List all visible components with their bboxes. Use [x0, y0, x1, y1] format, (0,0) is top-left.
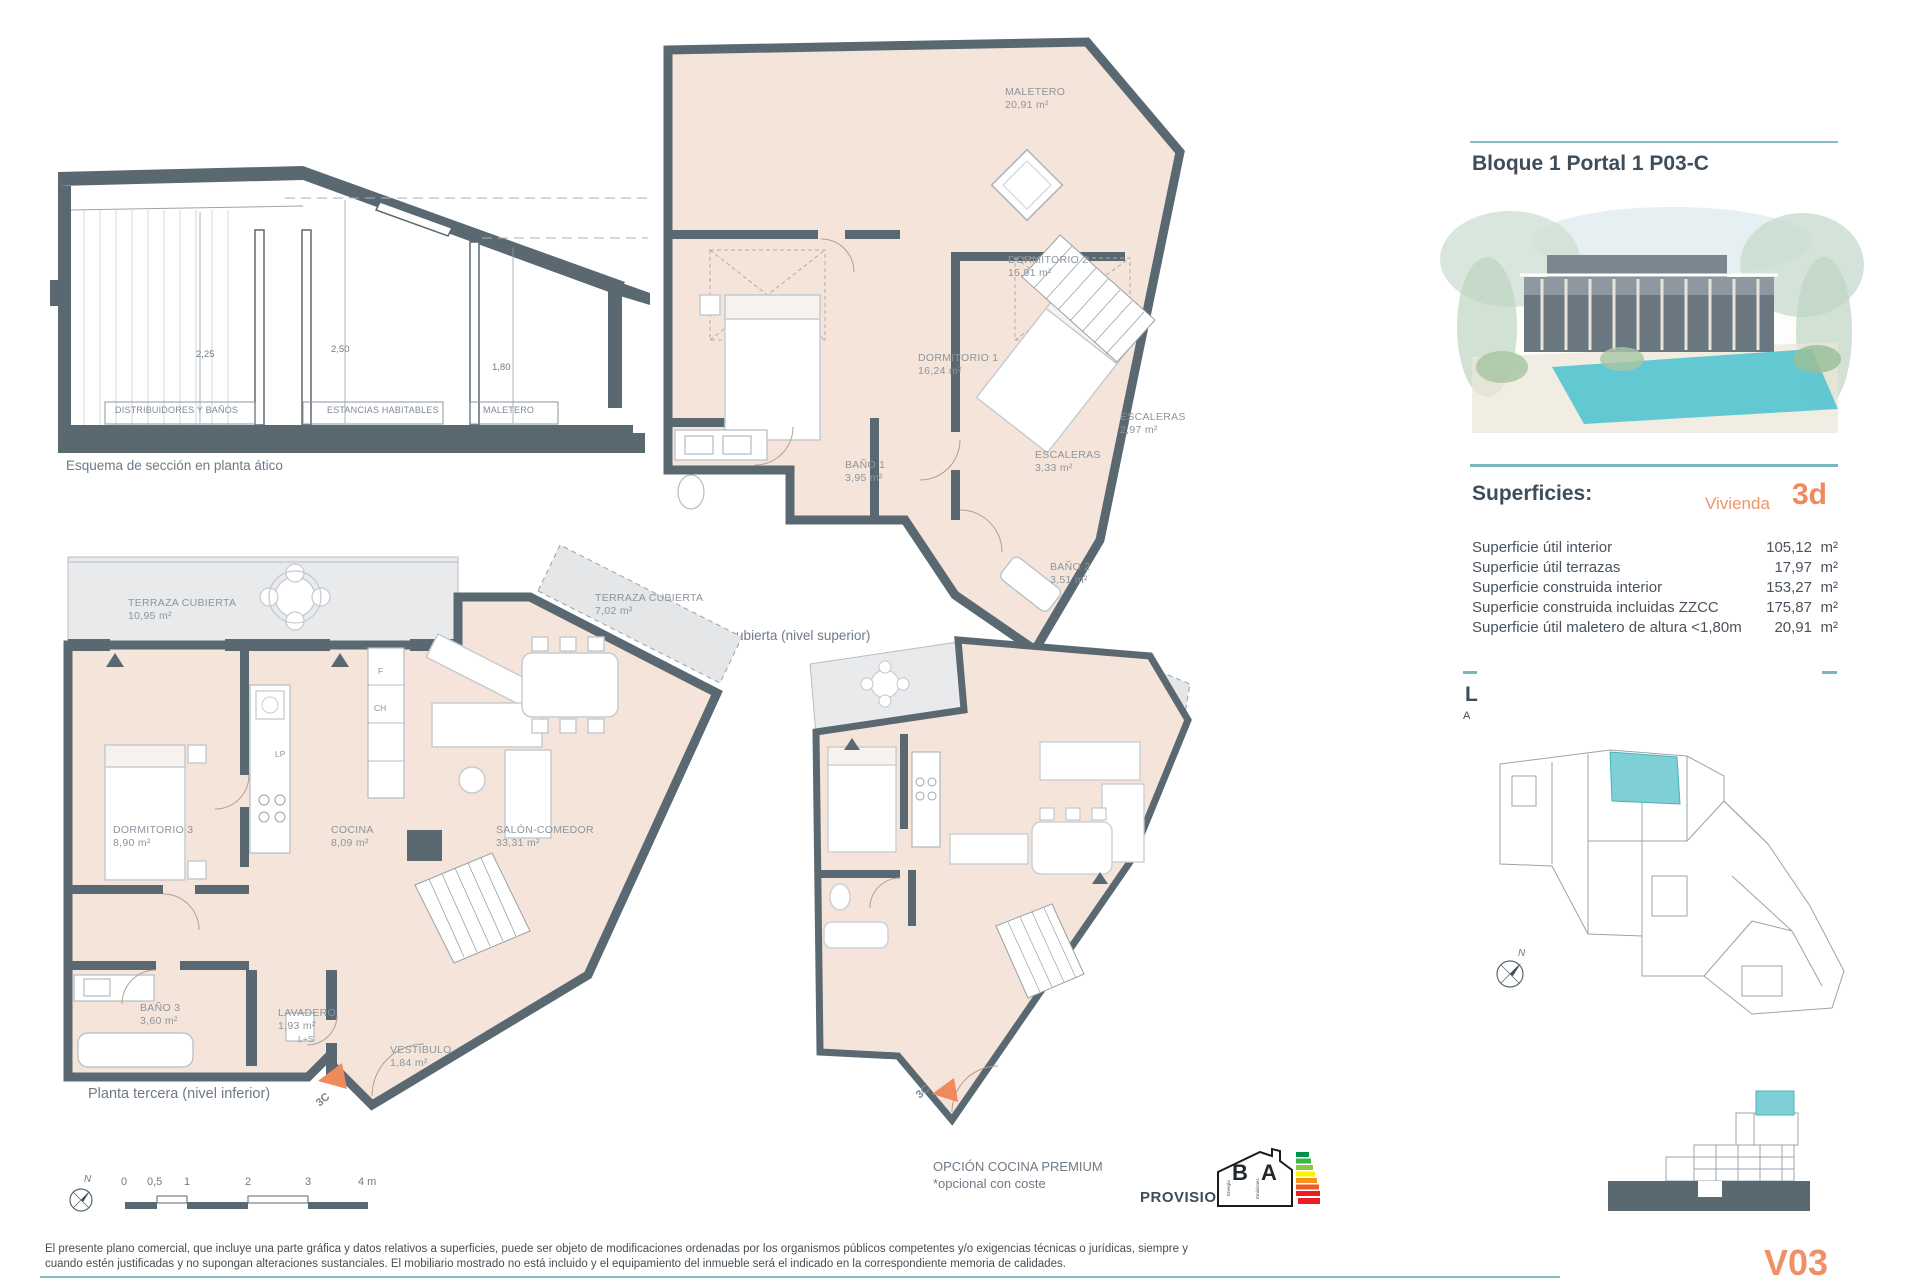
- room-label-escaleras2: ESCALERAS2,97 m²: [1120, 411, 1186, 437]
- lower-plan-caption: Planta tercera (nivel inferior): [88, 1086, 270, 1102]
- superficies-heading: Superficies:: [1472, 482, 1592, 506]
- partial-divider-left: [1463, 671, 1477, 674]
- section-zone-mid: ESTANCIAS HABITABLES: [327, 405, 439, 415]
- cropped-subheading-letter: A: [1463, 710, 1470, 722]
- room-label-vestibulo: VESTÍBULO1,84 m²: [390, 1044, 452, 1070]
- scale-tick-3: 3: [305, 1176, 311, 1188]
- scale-tick-05: 0,5: [147, 1176, 162, 1188]
- room-label-terraza2: TERRAZA CUBIERTA7,02 m²: [595, 592, 703, 618]
- site-key-plan: [1492, 746, 1870, 1024]
- scalebar-north-label: N: [84, 1174, 91, 1185]
- room-label-dorm3: DORMITORIO 38,90 m²: [113, 824, 193, 850]
- section-height-right: 1,80: [492, 362, 511, 373]
- superficies-row: Superficie útil terrazas17,97m²: [1472, 558, 1838, 578]
- project-rendering-illustration: [1472, 217, 1838, 433]
- scale-tick-1: 1: [184, 1176, 190, 1188]
- energy-letter-a: A: [1261, 1160, 1277, 1186]
- scalebar: [58, 1148, 378, 1218]
- superficies-divider: [1470, 464, 1838, 467]
- keyplan-north-label: N: [1518, 948, 1525, 959]
- label-ch: CH: [374, 703, 386, 713]
- room-label-dorm1: DORMITORIO 116,24 m²: [918, 352, 998, 378]
- header-divider: [1470, 141, 1838, 143]
- disclaimer-line2: cuando estén justificadas y no supongan …: [45, 1258, 1066, 1270]
- energy-arrows: [1296, 1152, 1320, 1204]
- label-lp: LP: [275, 749, 285, 759]
- version-label: V03: [1764, 1242, 1828, 1284]
- premium-kitchen-island: [950, 834, 1028, 864]
- building-elevation-schematic: [1606, 1083, 1816, 1215]
- superficies-row: Superficie construida interior153,27m²: [1472, 578, 1838, 598]
- compass-icon: [70, 1189, 92, 1211]
- scalebar-segments: [125, 1196, 368, 1209]
- section-wall-joints: [84, 210, 228, 425]
- energy-side-label-b: Energía: [1226, 1180, 1231, 1196]
- scale-tick-0: 0: [121, 1176, 127, 1188]
- superficies-row: Superficie útil maletero de altura <1,80…: [1472, 618, 1838, 638]
- superficies-table: Superficie útil interior105,12m² Superfi…: [1472, 538, 1838, 638]
- section-height-mid: 2,50: [331, 344, 350, 355]
- scale-tick-4: 4 m: [358, 1176, 376, 1188]
- highlighted-unit-elevation: [1756, 1091, 1794, 1115]
- partial-divider-right: [1822, 671, 1837, 674]
- highlighted-unit: [1610, 752, 1680, 804]
- disclaimer-line1: El presente plano comercial, que incluye…: [45, 1243, 1188, 1255]
- room-label-cocina: COCINA8,09 m²: [331, 824, 374, 850]
- cropped-heading-letter: L: [1465, 683, 1478, 707]
- section-caption: Esquema de sección en planta ático: [66, 458, 283, 473]
- label-ls: L+S: [298, 1034, 313, 1044]
- section-height-left: 2,25: [196, 349, 215, 360]
- keyplan-compass-icon: [1497, 961, 1523, 987]
- energy-side-label-a: Emisiones: [1255, 1178, 1260, 1199]
- vivienda-label: Vivienda: [1705, 494, 1770, 514]
- floorplan-sheet: { "header": { "title": "Bloque 1 Portal …: [0, 0, 1920, 1280]
- label-f: F: [378, 666, 383, 676]
- scale-tick-2: 2: [245, 1176, 251, 1188]
- premium-plan-note: *opcional con coste: [933, 1176, 1046, 1191]
- vivienda-code: 3d: [1792, 478, 1827, 512]
- premium-option-plan: [800, 622, 1190, 1147]
- room-label-salon: SALÓN-COMEDOR33,31 m²: [496, 824, 594, 850]
- room-label-maletero: MALETERO20,91 m²: [1005, 86, 1065, 112]
- section-zone-right: MALETERO: [483, 405, 534, 415]
- room-label-escaleras1: ESCALERAS3,33 m²: [1035, 449, 1101, 475]
- room-label-bano2: BAÑO 23,51 m²: [1050, 561, 1090, 587]
- premium-plan-title: OPCIÓN COCINA PREMIUM: [933, 1159, 1103, 1174]
- room-label-lavadero: LAVADERO1,93 m²: [278, 1007, 336, 1033]
- energy-letter-b: B: [1232, 1160, 1248, 1186]
- room-label-bano1: BAÑO 13,95 m²: [845, 459, 885, 485]
- page-title: Bloque 1 Portal 1 P03-C: [1472, 152, 1709, 176]
- superficies-row: Superficie útil interior105,12m²: [1472, 538, 1838, 558]
- room-label-terraza1: TERRAZA CUBIERTA10,95 m²: [128, 597, 236, 623]
- room-label-dorm2: DORMITORIO 215,91 m²: [1008, 254, 1088, 280]
- room-label-bano3: BAÑO 33,60 m²: [140, 1002, 180, 1028]
- superficies-row: Superficie construida incluidas ZZCC175,…: [1472, 598, 1838, 618]
- footer-divider: [40, 1276, 1560, 1278]
- section-zone-left: DISTRIBUIDORES Y BAÑOS: [115, 405, 238, 415]
